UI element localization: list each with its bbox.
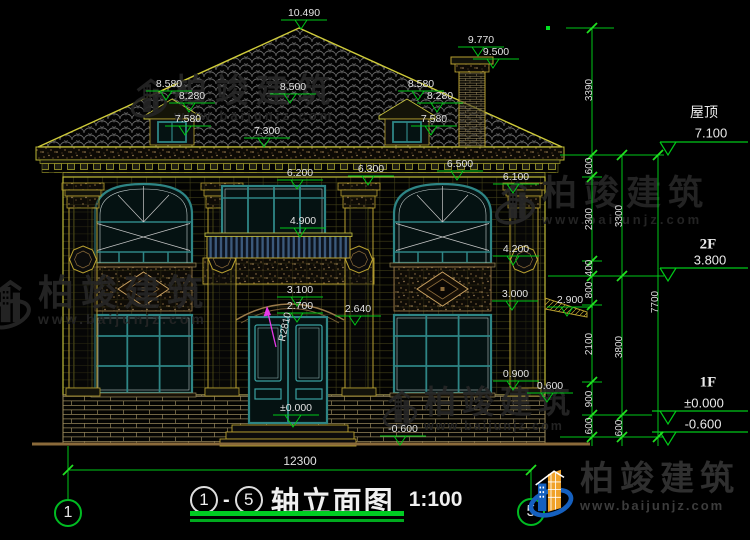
level-label-pilaster-capital: 6.100 (503, 172, 529, 183)
chain-a-dim-600a: 600 (585, 158, 595, 175)
level-label-chimney-cap: 9.500 (483, 47, 509, 58)
roof-label: 屋顶 (690, 105, 718, 119)
chain-c-dim-7700: 7700 (651, 291, 661, 313)
level-label-window-top-1f: 3.000 (502, 289, 528, 300)
level-label-dormer-left-ridge: 8.580 (156, 79, 182, 90)
level-label-sill-1f: 0.900 (503, 369, 529, 380)
level-label-roof-mid: 8.500 (280, 82, 306, 93)
cad-elevation-screenshot: 柏竣建筑 www.baijunjz.com 柏竣建筑 www.baijunjz.… (0, 0, 750, 540)
title-dash: - (223, 489, 230, 512)
level-label-arch-top: 3.100 (287, 285, 313, 296)
chain-b-dim-3800: 3800 (615, 336, 625, 358)
title-axis-to: 5 (244, 490, 253, 510)
label-layer: 10.490 9.770 9.500 8.580 8.280 7.580 8.5… (0, 0, 750, 540)
brand-url: www.baijunjz.com (580, 498, 740, 513)
axis-marker-1: 1 (54, 499, 82, 527)
brand-logo-block: 柏竣建筑 www.baijunjz.com (528, 462, 740, 528)
chain-a-dim-800: 800 (585, 282, 595, 299)
level-label-eave-top: 7.300 (254, 126, 280, 137)
level-label-panel-top: 4.200 (503, 244, 529, 255)
level-label-dormer-right-ridge: 8.580 (408, 79, 434, 90)
level-label-balcony-rail: 4.900 (290, 216, 316, 227)
title-scale: 1:100 (409, 488, 463, 512)
chain-a-dim-2100: 2100 (585, 333, 595, 355)
floor-1f-zero-level: ±0.000 (684, 397, 724, 410)
level-label-dormer-left-eave: 8.280 (179, 91, 205, 102)
level-label-porch-roof: 2.900 (557, 295, 583, 306)
chain-b-dim-3300: 3300 (615, 205, 625, 227)
level-label-cornice-bottom: 6.500 (447, 159, 473, 170)
floor-1f-label: 1F (700, 376, 717, 391)
chain-a-dim-600b: 600 (585, 418, 595, 435)
level-label-peak: 10.490 (288, 8, 320, 19)
floor-2f-level: 3.800 (694, 254, 727, 267)
roof-level: 7.100 (695, 127, 728, 140)
axis-marker-1-label: 1 (64, 504, 73, 522)
level-label-chimney-top: 9.770 (468, 35, 494, 46)
level-label-base-top: 0.600 (537, 381, 563, 392)
level-label-dormer-right-sill: 7.580 (421, 114, 447, 125)
level-label-dormer-left-sill: 7.580 (175, 114, 201, 125)
level-label-arch-spring: 2.640 (345, 304, 371, 315)
title-axis-to-circle: 5 (235, 486, 263, 514)
title-underline-thin (190, 519, 404, 522)
overall-width-dim: 12300 (283, 455, 316, 467)
level-label-grade: -0.600 (388, 424, 418, 435)
chain-a-dim-3390: 3390 (585, 79, 595, 101)
arch-radius-label: R2810 (278, 312, 294, 343)
brand-logo-icon (528, 462, 574, 528)
chain-a-dim-400: 400 (585, 260, 595, 277)
level-label-dormer-right-eave: 8.280 (427, 91, 453, 102)
title-axis-from-circle: 1 (190, 486, 218, 514)
title-axis-from: 1 (199, 490, 208, 510)
brand-name: 柏竣建筑 (580, 462, 740, 498)
chain-a-dim-900: 900 (585, 391, 595, 408)
chain-b-dim-600: 600 (615, 420, 625, 437)
title-underline-thick (190, 511, 404, 516)
level-label-door-top: 2.700 (287, 301, 313, 312)
floor-1f-below-level: -0.600 (685, 418, 722, 431)
level-label-balcony-window-top: 6.200 (287, 168, 313, 179)
level-label-door-floor: ±0.000 (280, 403, 312, 414)
chain-a-dim-2300: 2300 (585, 208, 595, 230)
floor-2f-label: 2F (700, 238, 717, 253)
level-label-frieze-right: 6.300 (358, 164, 384, 175)
